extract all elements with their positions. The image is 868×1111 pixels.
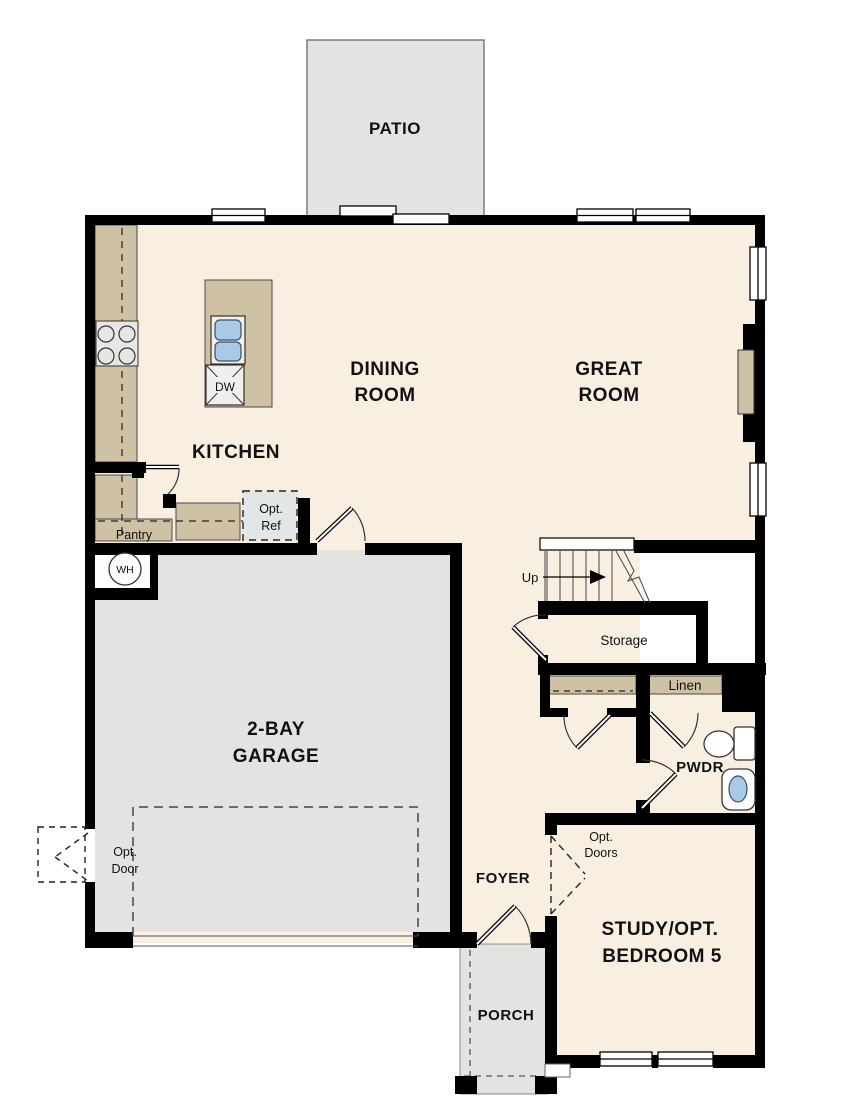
opt-ref-label-1: Opt. bbox=[259, 502, 283, 516]
opt-door-gap bbox=[85, 829, 95, 882]
cooktop-icon bbox=[96, 321, 138, 366]
study-front-wall bbox=[713, 1055, 765, 1068]
kitchen-garage-wall bbox=[365, 543, 462, 555]
pwdr-west-wall bbox=[636, 675, 650, 763]
opt-door-label-2: Door bbox=[111, 862, 138, 876]
garage-label-1: 2-BAY bbox=[247, 719, 305, 740]
wall-mass-linen bbox=[722, 675, 765, 712]
garage-area bbox=[95, 550, 455, 932]
study-west-wall bbox=[545, 916, 557, 1068]
study-west-wall bbox=[545, 813, 557, 835]
floor-plan-page: PATIO DINING ROOM GREAT ROOM KITCHEN 2-B… bbox=[0, 0, 868, 1111]
coat-closet-return bbox=[550, 708, 568, 717]
island-sink-icon bbox=[211, 316, 245, 364]
porch-label: PORCH bbox=[478, 1007, 535, 1024]
storage-north-wall bbox=[538, 601, 708, 615]
dishwasher-label: DW bbox=[215, 380, 236, 394]
ref-wall-stub bbox=[298, 498, 310, 543]
pantry-wall-stub bbox=[163, 494, 176, 508]
garage-label-2: GARAGE bbox=[233, 746, 319, 767]
storage-door-jamb bbox=[538, 601, 548, 619]
study-front-wall bbox=[652, 1055, 658, 1068]
study-north-wall bbox=[545, 813, 765, 825]
hall-closet-wall bbox=[538, 663, 766, 675]
great-room-label-2: ROOM bbox=[578, 385, 639, 406]
water-heater-label: WH bbox=[116, 564, 134, 576]
patio-slider-panel bbox=[340, 206, 396, 216]
floor-plan-svg: PATIO DINING ROOM GREAT ROOM KITCHEN 2-B… bbox=[0, 0, 868, 1111]
pantry-door-jamb bbox=[132, 462, 144, 478]
garage-front-corner bbox=[413, 932, 477, 948]
sink-icon bbox=[722, 769, 755, 810]
wh-nook-wall bbox=[95, 588, 157, 600]
dining-room-label-2: ROOM bbox=[354, 385, 415, 406]
great-room-south-wall bbox=[634, 540, 755, 553]
stair-landing-edge bbox=[540, 538, 634, 550]
opt-ref-label-2: Ref bbox=[261, 519, 281, 533]
patio-slider-panel bbox=[393, 214, 449, 224]
opt-doors-label-2: Doors bbox=[584, 846, 617, 860]
porch-post bbox=[535, 1076, 557, 1094]
garage-east-wall bbox=[450, 543, 462, 948]
study-label-2: BEDROOM 5 bbox=[602, 946, 722, 967]
coat-closet-return bbox=[607, 708, 637, 717]
dining-room-label-1: DINING bbox=[350, 359, 420, 380]
coat-closet-wall bbox=[540, 675, 550, 717]
pantry-shelf bbox=[95, 475, 137, 521]
patio-label: PATIO bbox=[369, 119, 421, 138]
storage-east-wall bbox=[696, 601, 708, 675]
opt-garage-door-dashed bbox=[38, 827, 88, 882]
storage-label: Storage bbox=[600, 633, 647, 648]
porch-post bbox=[455, 1076, 477, 1094]
garage-front-corner bbox=[85, 932, 133, 948]
pantry-label: Pantry bbox=[116, 528, 153, 542]
great-room-label-1: GREAT bbox=[575, 359, 643, 380]
opt-door-label-1: Opt. bbox=[113, 845, 137, 859]
porch-step bbox=[545, 1064, 570, 1077]
opt-doors-label-1: Opt. bbox=[589, 830, 613, 844]
kitchen-label: KITCHEN bbox=[192, 442, 280, 463]
wh-nook-wall bbox=[150, 550, 158, 600]
study-label-1: STUDY/OPT. bbox=[602, 919, 719, 940]
linen-label: Linen bbox=[668, 678, 701, 693]
pwdr-label: PWDR bbox=[676, 759, 724, 776]
foyer-label: FOYER bbox=[476, 870, 530, 887]
stairs-up-label: Up bbox=[522, 570, 539, 585]
